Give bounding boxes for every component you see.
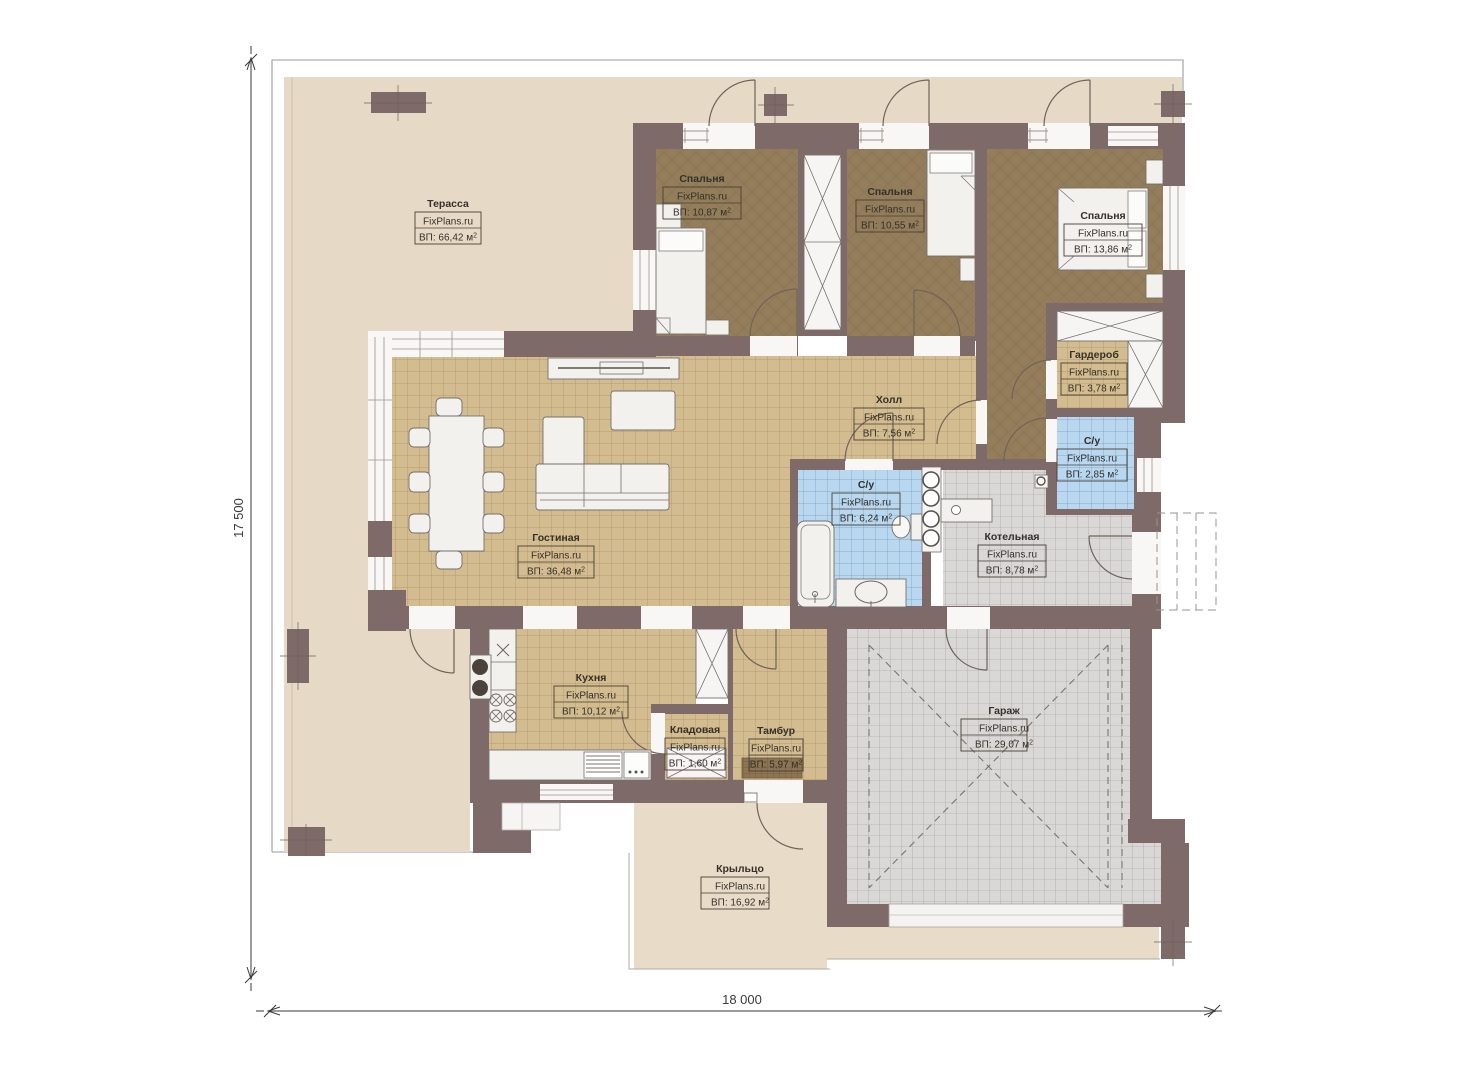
svg-text:FixPlans.ru: FixPlans.ru [979,724,1029,735]
svg-text:ВП: 8,78 м2: ВП: 8,78 м2 [986,566,1039,577]
svg-text:FixPlans.ru: FixPlans.ru [566,691,616,702]
svg-text:18 000: 18 000 [722,992,762,1007]
svg-text:ВП: 16,92 м2: ВП: 16,92 м2 [711,898,769,909]
svg-text:FixPlans.ru: FixPlans.ru [751,744,801,755]
svg-text:FixPlans.ru: FixPlans.ru [531,551,581,562]
svg-text:ВП: 66,42 м2: ВП: 66,42 м2 [419,233,477,244]
svg-text:Крыльцо: Крыльцо [716,863,764,875]
svg-text:Спальня: Спальня [679,173,724,185]
svg-text:ВП: 6,24 м2: ВП: 6,24 м2 [840,514,893,525]
svg-text:FixPlans.ru: FixPlans.ru [715,882,765,893]
svg-text:ВП: 5,97 м2: ВП: 5,97 м2 [750,760,803,771]
svg-text:ВП: 10,55 м2: ВП: 10,55 м2 [861,221,919,232]
svg-text:Спальня: Спальня [867,186,912,198]
svg-text:Гардероб: Гардероб [1069,349,1119,361]
svg-text:ВП: 10,87 м2: ВП: 10,87 м2 [673,208,731,219]
svg-text:FixPlans.ru: FixPlans.ru [423,217,473,228]
svg-text:FixPlans.ru: FixPlans.ru [1067,454,1117,465]
svg-text:Холл: Холл [876,394,902,406]
svg-text:Котельная: Котельная [985,531,1040,543]
svg-text:FixPlans.ru: FixPlans.ru [670,743,720,754]
svg-text:С/у: С/у [1084,435,1101,447]
svg-text:ВП: 10,12 м2: ВП: 10,12 м2 [562,707,620,718]
svg-text:ВП: 13,86 м2: ВП: 13,86 м2 [1074,245,1132,256]
svg-text:Кухня: Кухня [576,672,607,684]
svg-text:FixPlans.ru: FixPlans.ru [987,550,1037,561]
svg-text:С/у: С/у [858,479,875,491]
svg-text:ВП: 7,56 м2: ВП: 7,56 м2 [863,429,916,440]
svg-text:ВП: 2,85 м2: ВП: 2,85 м2 [1066,470,1119,481]
svg-text:ВП: 3,78 м2: ВП: 3,78 м2 [1068,384,1121,395]
svg-text:ВП: 1,60 м2: ВП: 1,60 м2 [669,759,722,770]
svg-text:Терасса: Терасса [427,198,469,210]
svg-text:17 500: 17 500 [231,498,246,538]
svg-text:Кладовая: Кладовая [670,724,720,736]
svg-text:ВП: 29,07 м2: ВП: 29,07 м2 [975,740,1033,751]
svg-text:Спальня: Спальня [1080,210,1125,222]
svg-text:FixPlans.ru: FixPlans.ru [841,498,891,509]
svg-text:Гараж: Гараж [988,705,1020,717]
svg-text:Тамбур: Тамбур [757,725,795,737]
svg-text:FixPlans.ru: FixPlans.ru [1078,229,1128,240]
svg-text:Гостиная: Гостиная [532,532,579,544]
svg-text:FixPlans.ru: FixPlans.ru [864,413,914,424]
svg-text:FixPlans.ru: FixPlans.ru [1069,368,1119,379]
svg-text:FixPlans.ru: FixPlans.ru [865,205,915,216]
svg-text:ВП: 36,48 м2: ВП: 36,48 м2 [527,567,585,578]
svg-text:FixPlans.ru: FixPlans.ru [677,192,727,203]
